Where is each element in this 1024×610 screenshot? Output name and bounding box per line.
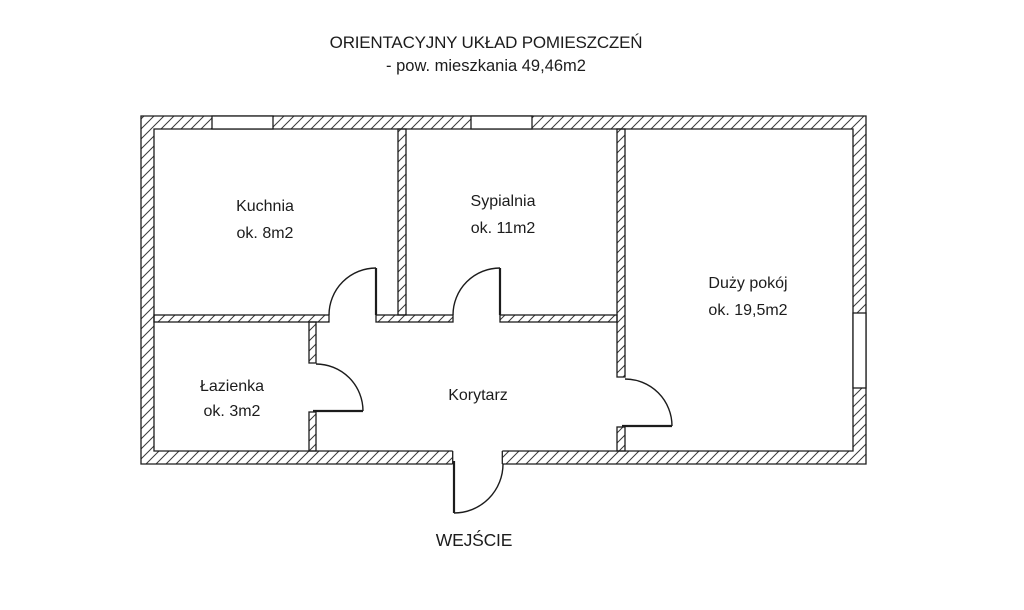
door-entrance — [454, 461, 503, 513]
room-area-lazienka: ok. 3m2 — [204, 403, 261, 420]
room-name-sypialnia: Sypialnia — [471, 193, 536, 210]
wall-duzy-pokoj-upper — [617, 129, 625, 377]
entrance-label: WEJŚCIE — [436, 529, 512, 550]
wall-corridor-top-middle — [376, 315, 453, 322]
wall-duzy-pokoj-lower — [617, 427, 625, 451]
door-duzy-pokoj — [622, 379, 672, 426]
window-duzy-pokoj — [853, 313, 866, 388]
room-label-sypialnia: Sypialnia ok. 11m2 — [471, 193, 536, 237]
room-label-lazienka: Łazienka ok. 3m2 — [200, 378, 264, 420]
door-sypialnia-arc — [453, 268, 500, 315]
floor-plan-drawing: ORIENTACYJNY UKŁAD POMIESZCZEŃ - pow. mi… — [0, 0, 1024, 610]
door-duzy-pokoj-arc — [625, 379, 672, 426]
door-entrance-arc — [454, 464, 503, 513]
room-area-sypialnia: ok. 11m2 — [471, 220, 536, 237]
room-label-kuchnia: Kuchnia ok. 8m2 — [236, 198, 294, 242]
door-sypialnia — [453, 268, 500, 315]
door-kuchnia — [329, 268, 376, 315]
room-area-kuchnia: ok. 8m2 — [237, 225, 294, 242]
window-kuchnia — [212, 116, 273, 129]
wall-corridor-top-left — [154, 315, 329, 322]
room-name-kuchnia: Kuchnia — [236, 198, 294, 215]
room-name-lazienka: Łazienka — [200, 378, 264, 395]
door-lazienka — [313, 364, 363, 411]
wall-lazienka-lower — [309, 412, 316, 451]
plan-title: ORIENTACYJNY UKŁAD POMIESZCZEŃ — [330, 33, 643, 52]
wall-kuchnia-sypialnia — [398, 129, 406, 315]
wall-corridor-top-right — [500, 315, 617, 322]
entrance-opening — [453, 450, 503, 466]
door-kuchnia-arc — [329, 268, 376, 315]
room-name-korytarz: Korytarz — [448, 387, 508, 404]
room-name-duzy-pokoj: Duży pokój — [708, 275, 787, 292]
window-sypialnia — [471, 116, 532, 129]
wall-lazienka-upper — [309, 322, 316, 363]
room-area-duzy-pokoj: ok. 19,5m2 — [708, 302, 787, 319]
floor-plan-page: ORIENTACYJNY UKŁAD POMIESZCZEŃ - pow. mi… — [0, 0, 1024, 610]
room-label-duzy-pokoj: Duży pokój ok. 19,5m2 — [708, 275, 787, 319]
door-lazienka-arc — [316, 364, 363, 411]
plan-subtitle: - pow. mieszkania 49,46m2 — [386, 57, 586, 75]
